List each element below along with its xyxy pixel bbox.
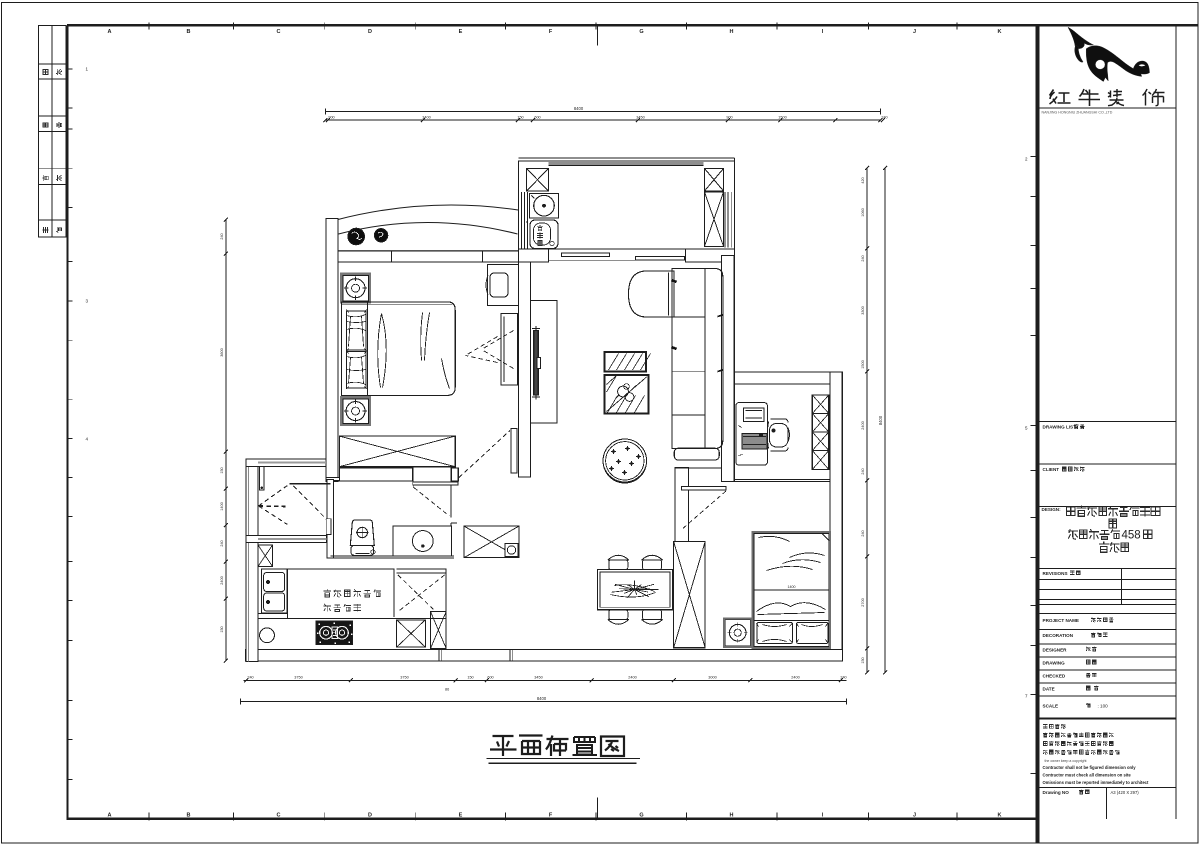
svg-text:3750: 3750 xyxy=(294,675,302,679)
svg-text:240: 240 xyxy=(861,255,865,261)
svg-text:3000: 3000 xyxy=(708,675,716,679)
svg-text:600: 600 xyxy=(487,675,493,679)
svg-text:240: 240 xyxy=(220,540,224,546)
svg-text:240: 240 xyxy=(861,530,865,536)
svg-text:DATE: DATE xyxy=(1043,686,1055,691)
svg-text:the owner keep a copyright: the owner keep a copyright xyxy=(1045,759,1087,763)
svg-text:240: 240 xyxy=(881,115,887,119)
svg-text:3300: 3300 xyxy=(861,306,865,314)
svg-text:3400: 3400 xyxy=(422,115,430,119)
svg-text:Contractor shall not be figure: Contractor shall not be figured dimensio… xyxy=(1043,765,1137,770)
svg-text:C: C xyxy=(277,813,281,819)
svg-text:3750: 3750 xyxy=(400,675,408,679)
svg-text:1060: 1060 xyxy=(861,208,865,216)
svg-text:DESIGNER: DESIGNER xyxy=(1043,647,1068,652)
svg-text:C: C xyxy=(277,29,281,35)
svg-text:900: 900 xyxy=(726,115,732,119)
svg-text:8400: 8400 xyxy=(574,106,584,111)
svg-text:A: A xyxy=(108,29,112,35)
svg-text:G: G xyxy=(639,29,643,35)
svg-text:86: 86 xyxy=(445,688,449,692)
svg-text:3600: 3600 xyxy=(220,348,224,356)
svg-text:H: H xyxy=(730,813,734,819)
svg-text:E: E xyxy=(459,813,463,819)
svg-text:E: E xyxy=(459,29,463,35)
svg-text:2400: 2400 xyxy=(791,675,799,679)
svg-text:H: H xyxy=(730,29,734,35)
svg-text:3450: 3450 xyxy=(534,675,542,679)
svg-text:240: 240 xyxy=(861,468,865,474)
svg-text:B: B xyxy=(187,813,191,819)
svg-text:8400: 8400 xyxy=(878,415,883,425)
svg-text:420: 420 xyxy=(861,177,865,183)
svg-text:2400: 2400 xyxy=(861,421,865,429)
svg-text:K: K xyxy=(998,813,1002,819)
svg-text:150: 150 xyxy=(220,467,224,473)
svg-text:3450: 3450 xyxy=(636,115,644,119)
svg-text:1400: 1400 xyxy=(220,502,224,510)
svg-text:PROJECT NAME: PROJECT NAME xyxy=(1043,618,1080,623)
svg-text:150: 150 xyxy=(861,657,865,663)
svg-text:2400: 2400 xyxy=(628,675,636,679)
svg-text:: 100: : 100 xyxy=(1098,704,1109,709)
svg-text:NANJING HONGNIU ZHUANGSHI CO.,: NANJING HONGNIU ZHUANGSHI CO.,LTD xyxy=(1042,111,1113,115)
svg-text:240: 240 xyxy=(247,675,253,679)
svg-text:Drawing NO: Drawing NO xyxy=(1043,790,1070,795)
svg-text:900: 900 xyxy=(328,115,334,119)
svg-text:A: A xyxy=(108,813,112,819)
svg-text:DRAWING: DRAWING xyxy=(1043,660,1066,665)
svg-text:1400: 1400 xyxy=(788,585,796,589)
svg-text:150: 150 xyxy=(517,115,523,119)
svg-text:CHECKED: CHECKED xyxy=(1043,673,1066,678)
svg-text:Contractor must check all dime: Contractor must check all dimension on s… xyxy=(1043,773,1132,778)
svg-text:REVISIONS: REVISIONS xyxy=(1043,571,1068,576)
svg-text:1500: 1500 xyxy=(778,115,786,119)
svg-text:2400: 2400 xyxy=(220,576,224,584)
svg-text:150: 150 xyxy=(467,675,473,679)
svg-text:458: 458 xyxy=(1122,530,1141,542)
svg-text:2700: 2700 xyxy=(861,598,865,606)
svg-text:G: G xyxy=(639,813,643,819)
svg-text:150: 150 xyxy=(220,626,224,632)
svg-text:K: K xyxy=(998,29,1002,35)
svg-text:8400: 8400 xyxy=(537,696,547,701)
svg-text:B: B xyxy=(187,29,191,35)
svg-text:DRAWING LIST: DRAWING LIST xyxy=(1043,424,1077,429)
svg-text:J: J xyxy=(913,29,916,35)
svg-text:J: J xyxy=(913,813,916,819)
svg-text:CLIENT: CLIENT xyxy=(1043,467,1060,472)
svg-text:DECORATION: DECORATION xyxy=(1043,633,1074,638)
svg-text:A3 (420 X 297): A3 (420 X 297) xyxy=(1111,790,1140,795)
svg-text:240: 240 xyxy=(840,675,846,679)
svg-text:Omissions must be reported imm: Omissions must be reported immediately t… xyxy=(1043,780,1149,785)
svg-text:DESIGN:: DESIGN: xyxy=(1042,507,1062,512)
svg-text:240: 240 xyxy=(220,233,224,239)
svg-text:SCALE: SCALE xyxy=(1043,704,1059,709)
svg-text:D: D xyxy=(368,29,372,35)
svg-text:600: 600 xyxy=(534,115,540,119)
svg-text:1500: 1500 xyxy=(861,360,865,368)
svg-text:D: D xyxy=(368,813,372,819)
